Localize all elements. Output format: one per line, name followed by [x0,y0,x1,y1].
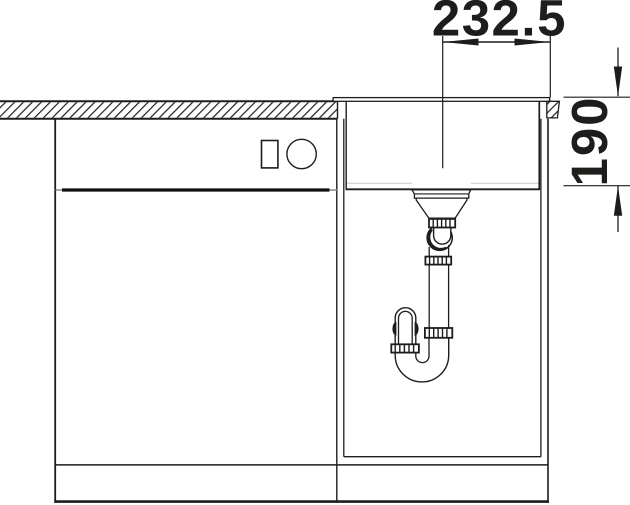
svg-text:232.5: 232.5 [432,0,567,47]
svg-text:190: 190 [561,95,618,186]
